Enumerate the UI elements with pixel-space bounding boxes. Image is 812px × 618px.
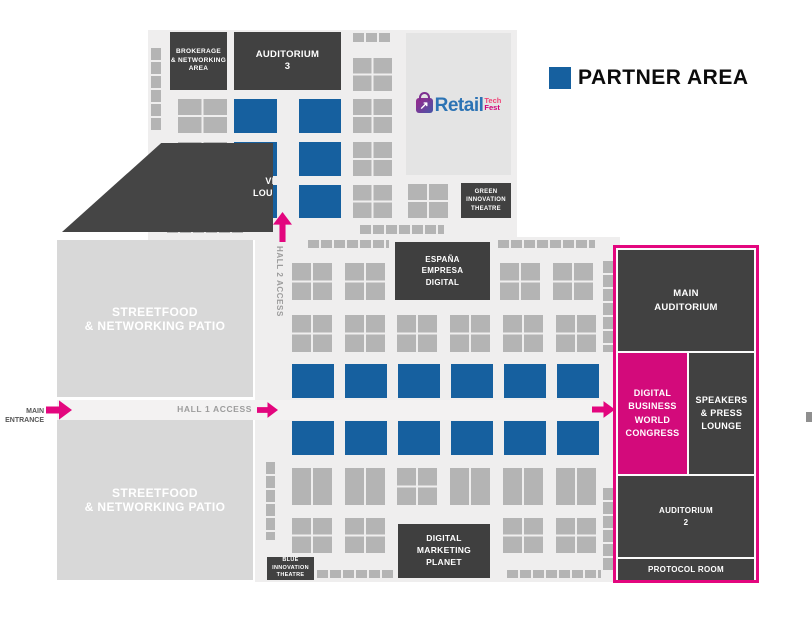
- booth-strip: [507, 570, 601, 578]
- logo-panel: ↗ Retail Tech Fest: [406, 33, 511, 175]
- booth-cluster: [500, 263, 540, 300]
- booth-cluster: [178, 99, 227, 133]
- digital-marketing-planet-label: DIGITAL MARKETING PLANET: [417, 533, 471, 569]
- booth-cluster: [353, 99, 392, 133]
- booth-cluster: [503, 315, 543, 352]
- partner-booth: [299, 185, 341, 218]
- hall2-access-text: HALL 2 ACCESS: [275, 246, 284, 317]
- booth-strip: [353, 33, 392, 42]
- partner-booth: [299, 99, 341, 133]
- hall2-access-label: HALL 2 ACCESS: [275, 246, 284, 318]
- hall1-access-text: HALL 1 ACCESS: [177, 404, 252, 414]
- partner-booth: [234, 99, 277, 133]
- booth-cluster: [450, 315, 490, 352]
- venue-floor-plan: BROKERAGE & NETWORKING AREA AUDITORIUM 3…: [0, 0, 812, 618]
- espana-empresa-digital: ESPAÑA EMPRESA DIGITAL: [395, 242, 490, 300]
- booth-strip: [317, 570, 393, 578]
- booth-strip: [266, 462, 275, 540]
- digital-business-world-congress: DIGITAL BUSINESS WORLD CONGRESS: [618, 353, 687, 474]
- main-auditorium: MAIN AUDITORIUM: [618, 250, 754, 351]
- booth-cluster: [397, 468, 437, 505]
- partner-booth: [557, 364, 599, 398]
- blue-innovation-theatre: BLUE INNOVATION THEATRE: [267, 557, 314, 580]
- brokerage-networking-area: BROKERAGE & NETWORKING AREA: [170, 32, 227, 90]
- booth-strip: [498, 240, 595, 248]
- booth-strip: [360, 225, 444, 234]
- booth-cluster: [556, 518, 596, 553]
- partner-booth: [504, 364, 546, 398]
- legend: PARTNER AREA: [549, 65, 769, 91]
- partner-booth: [292, 364, 334, 398]
- hall1-access-label: HALL 1 ACCESS: [140, 404, 252, 414]
- edge-booth-fragment: [806, 412, 812, 422]
- booth-cluster: [556, 315, 596, 352]
- green-innovation-theatre: GREEN INNOVATION THEATRE: [461, 183, 511, 218]
- booth-cluster: [553, 263, 593, 300]
- booth-cluster: [408, 184, 448, 218]
- partner-booth: [451, 421, 493, 455]
- streetfood-patio-bottom: STREETFOOD & NETWORKING PATIO: [57, 420, 253, 580]
- booth-strip: [308, 240, 389, 248]
- bag-icon: ↗: [416, 98, 433, 113]
- partner-booth: [451, 364, 493, 398]
- booth-cluster: [556, 468, 596, 505]
- booth-cluster: [503, 468, 543, 505]
- partner-booth: [345, 421, 387, 455]
- partner-booth: [398, 421, 440, 455]
- booth-cluster: [292, 468, 332, 505]
- logo-retail: Retail: [435, 95, 484, 117]
- partner-booth: [398, 364, 440, 398]
- booth-cluster: [450, 468, 490, 505]
- partner-booth: [345, 364, 387, 398]
- retail-tech-fest-logo: ↗ Retail Tech Fest: [416, 92, 502, 117]
- logo-fest: Fest: [484, 104, 501, 112]
- booth-cluster: [292, 518, 332, 553]
- auditorium-3-label: AUDITORIUM 3: [256, 49, 320, 74]
- booth-cluster: [503, 518, 543, 553]
- auditorium-3: AUDITORIUM 3: [234, 32, 341, 90]
- booth-cluster: [292, 315, 332, 352]
- main-entrance-text: MAIN ENTRANCE: [5, 408, 44, 424]
- main-auditorium-label: MAIN AUDITORIUM: [654, 287, 718, 315]
- streetfood-patio-bottom-label: STREETFOOD & NETWORKING PATIO: [85, 486, 226, 514]
- speakers-press-lounge: SPEAKERS & PRESS LOUNGE: [689, 353, 754, 474]
- legend-label: PARTNER AREA: [578, 66, 749, 90]
- auditorium-2: AUDITORIUM 2: [618, 476, 754, 557]
- booth-cluster: [345, 315, 385, 352]
- booth-cluster: [292, 263, 332, 300]
- booth-cluster: [353, 185, 392, 218]
- congress-label: DIGITAL BUSINESS WORLD CONGRESS: [626, 387, 680, 439]
- protocol-room-label: PROTOCOL ROOM: [648, 565, 724, 574]
- brokerage-label: BROKERAGE & NETWORKING AREA: [171, 48, 226, 74]
- partner-booth: [292, 421, 334, 455]
- protocol-room: PROTOCOL ROOM: [618, 559, 754, 580]
- booth-cluster: [345, 518, 385, 553]
- auditorium-2-label: AUDITORIUM 2: [659, 505, 713, 528]
- booth-cluster: [345, 263, 385, 300]
- streetfood-patio-top: STREETFOOD & NETWORKING PATIO: [57, 240, 253, 397]
- vip-lounge: VIP LOUNGE: [62, 143, 273, 232]
- booth-cluster: [397, 315, 437, 352]
- booth-strip: [151, 48, 161, 132]
- digital-marketing-planet: DIGITAL MARKETING PLANET: [398, 524, 490, 578]
- booth-cluster: [353, 142, 392, 176]
- booth-cluster: [353, 58, 392, 91]
- streetfood-patio-top-label: STREETFOOD & NETWORKING PATIO: [85, 305, 226, 333]
- partner-area-swatch: [549, 67, 571, 89]
- booth-cluster: [345, 468, 385, 505]
- green-innovation-theatre-label: GREEN INNOVATION THEATRE: [466, 188, 506, 213]
- partner-booth: [299, 142, 341, 176]
- speakers-press-lounge-label: SPEAKERS & PRESS LOUNGE: [696, 394, 748, 433]
- espana-empresa-digital-label: ESPAÑA EMPRESA DIGITAL: [422, 254, 464, 288]
- main-entrance-label: MAIN ENTRANCE: [0, 398, 44, 425]
- partner-booth: [557, 421, 599, 455]
- blue-innovation-theatre-label: BLUE INNOVATION THEATRE: [272, 557, 309, 579]
- partner-booth: [504, 421, 546, 455]
